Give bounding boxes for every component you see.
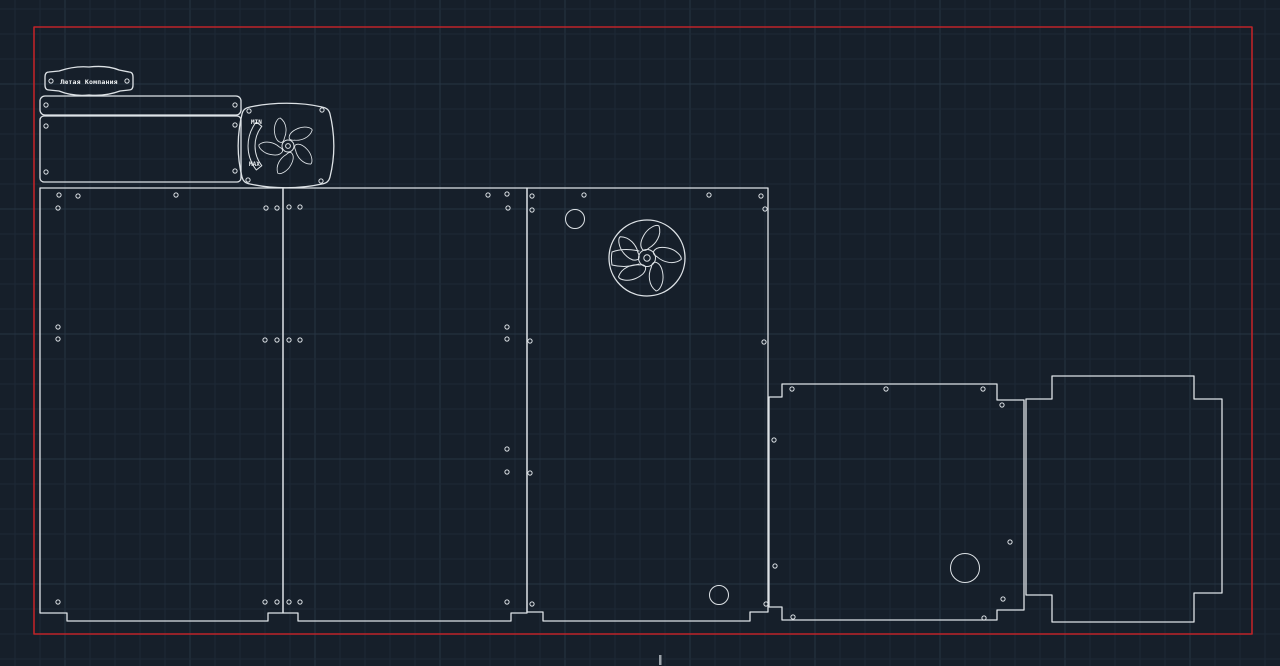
bolt-hole xyxy=(44,103,48,107)
bolt-holes-layer xyxy=(44,79,1012,620)
bolt-hole xyxy=(44,124,48,128)
fan-cutout-slot xyxy=(611,250,639,267)
bolt-hole xyxy=(246,178,250,182)
fan-cutout-blade xyxy=(641,261,671,292)
bolt-hole xyxy=(530,194,534,198)
bolt-hole xyxy=(791,615,795,619)
fan-dial-max-label: MAX xyxy=(249,161,260,168)
bolt-hole xyxy=(233,123,237,127)
bolt-hole xyxy=(76,194,80,198)
fan-cutout-hub xyxy=(639,250,656,267)
fan-cutout-blade xyxy=(652,242,682,268)
bolt-hole xyxy=(528,471,532,475)
bolt-hole xyxy=(528,339,532,343)
bolt-hole xyxy=(1001,597,1005,601)
engraved-labels-layer: Лютая Компания MIN MAX xyxy=(60,78,262,168)
fan-cutout-blade xyxy=(618,257,648,288)
fan-grill-blade xyxy=(258,138,283,160)
bolt-hole xyxy=(125,79,129,83)
cad-viewport[interactable]: Лютая Компания MIN MAX xyxy=(0,0,1280,666)
bolt-hole xyxy=(505,192,509,196)
bolt-hole xyxy=(505,337,509,341)
fan-grill-blade xyxy=(277,152,293,173)
bolt-hole xyxy=(56,600,60,604)
panel-bottom[interactable] xyxy=(769,384,1024,620)
bolt-hole xyxy=(1008,540,1012,544)
bolt-hole xyxy=(759,194,763,198)
bolt-hole xyxy=(247,109,251,113)
bolt-hole xyxy=(1000,403,1004,407)
bolt-hole xyxy=(790,387,794,391)
bolt-hole xyxy=(57,193,61,197)
bolt-hole xyxy=(707,193,711,197)
bolt-hole xyxy=(981,387,985,391)
bolt-hole xyxy=(505,470,509,474)
bolt-hole xyxy=(486,193,490,197)
bolt-hole xyxy=(319,179,323,183)
panel-side-cross[interactable] xyxy=(1026,376,1222,622)
bolt-hole xyxy=(275,600,279,604)
bolt-hole xyxy=(56,325,60,329)
bolt-hole xyxy=(233,169,237,173)
fan-cutout-blade xyxy=(614,236,644,262)
fan-cutout-hub-hole xyxy=(644,255,650,261)
bolt-hole xyxy=(174,193,178,197)
vent-hole-circle[interactable] xyxy=(566,210,585,229)
bolt-hole xyxy=(233,103,237,107)
panel-fan-side[interactable] xyxy=(527,188,768,621)
bolt-hole xyxy=(505,325,509,329)
bolt-hole xyxy=(275,338,279,342)
cut-parts-layer xyxy=(34,27,1252,665)
bolt-hole xyxy=(884,387,888,391)
fan-cutout-blade xyxy=(641,225,660,250)
bolt-hole xyxy=(44,170,48,174)
bolt-hole xyxy=(56,337,60,341)
bolt-hole xyxy=(298,205,302,209)
grid xyxy=(0,0,1280,666)
bolt-hole xyxy=(505,600,509,604)
bolt-hole xyxy=(298,338,302,342)
bolt-hole xyxy=(505,447,509,451)
name-tag-label: Лютая Компания xyxy=(60,78,118,86)
bolt-hole xyxy=(772,438,776,442)
sheet-boundary[interactable] xyxy=(34,27,1252,634)
bolt-hole xyxy=(49,79,53,83)
fan-dial-min-label: MIN xyxy=(251,119,262,126)
cad-drawing: Лютая Компания MIN MAX xyxy=(0,0,1280,666)
fan-grill-hub xyxy=(282,140,294,152)
bolt-hole xyxy=(582,193,586,197)
bolt-hole xyxy=(298,600,302,604)
cable-hole-circle[interactable] xyxy=(710,586,729,605)
panel-left[interactable] xyxy=(40,188,283,621)
fan-grill-blade xyxy=(291,143,316,165)
cursor-tick xyxy=(659,655,662,665)
bolt-hole xyxy=(530,602,534,606)
bolt-hole xyxy=(773,564,777,568)
